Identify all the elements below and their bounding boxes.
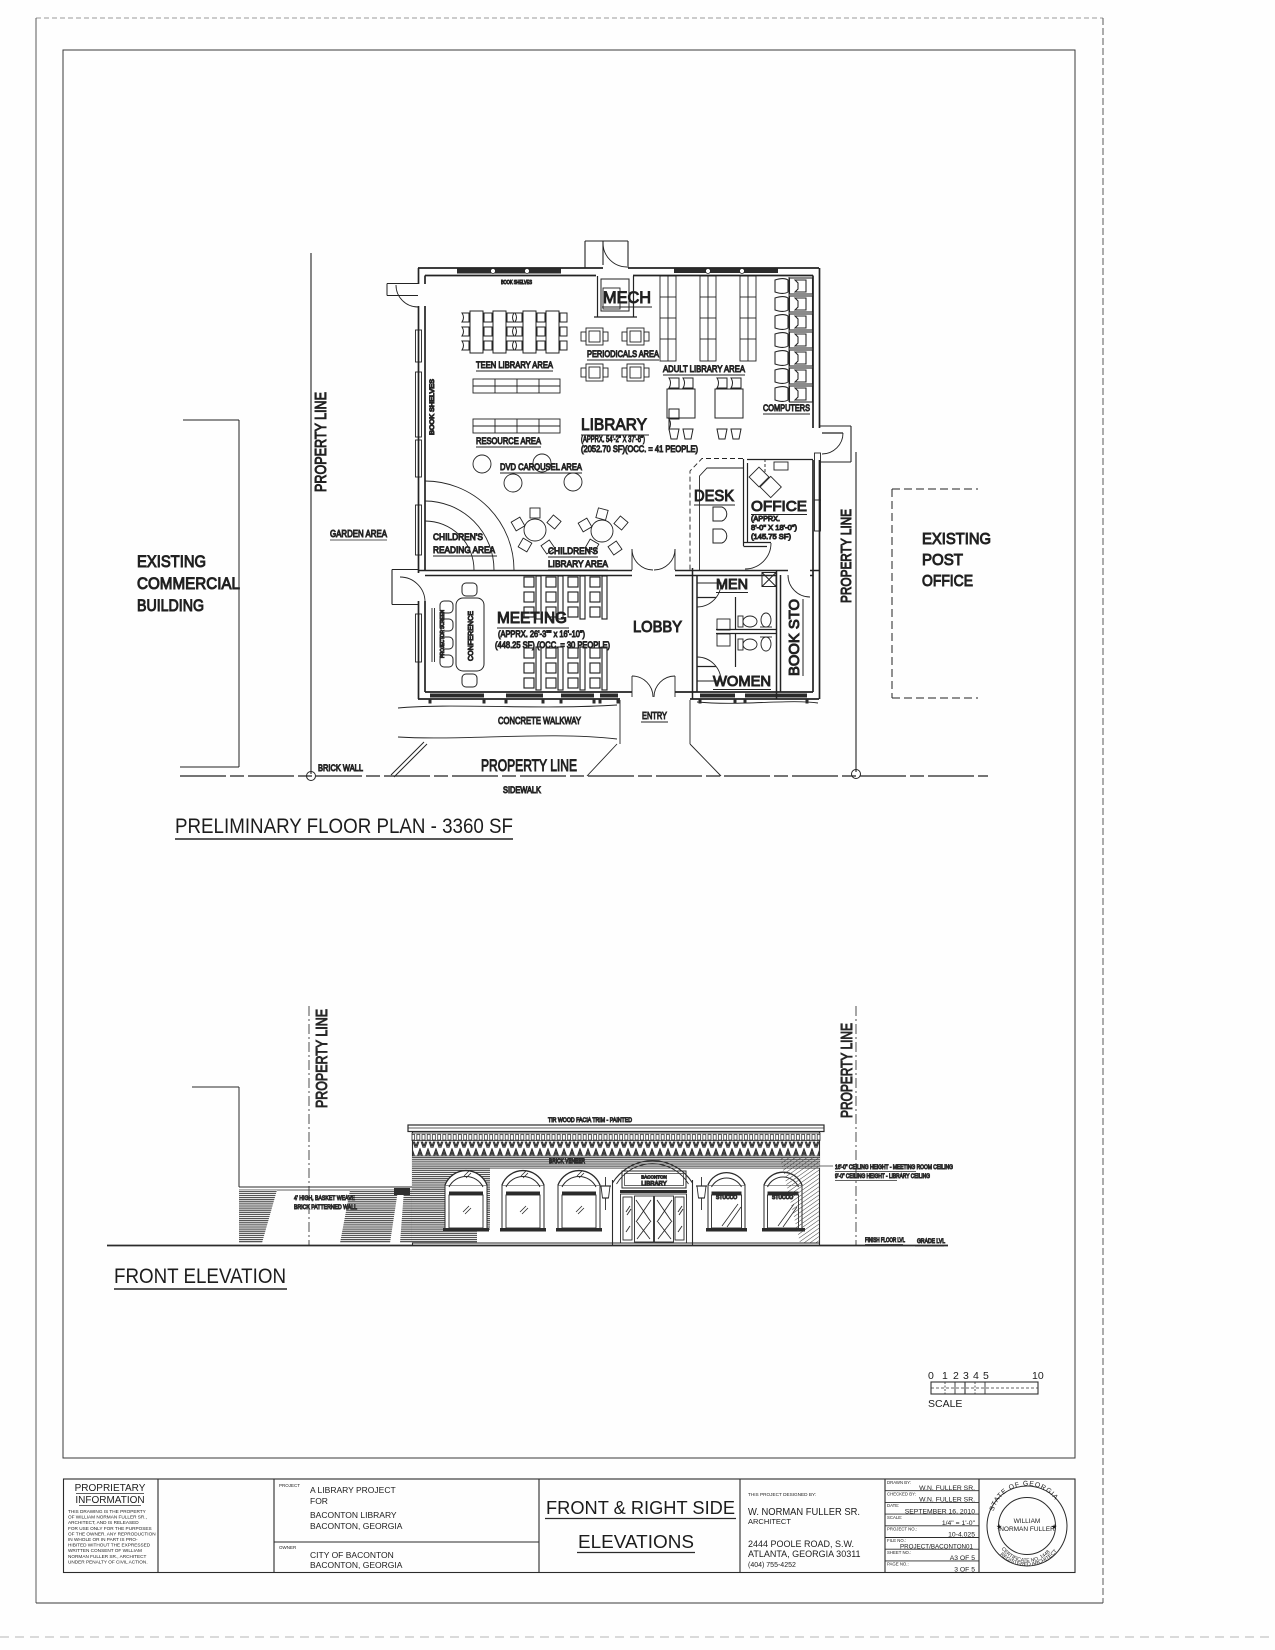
svg-text:PROJECT: PROJECT	[279, 1483, 300, 1488]
svg-text:A3 OF 5: A3 OF 5	[950, 1555, 976, 1562]
svg-text:4: 4	[973, 1370, 979, 1382]
svg-text:1/4" = 1'-0": 1/4" = 1'-0"	[942, 1520, 976, 1527]
svg-text:SCALE: SCALE	[928, 1398, 962, 1410]
svg-text:BRICK PATTERNED WALL: BRICK PATTERNED WALL	[294, 1204, 357, 1211]
svg-text:NORMAN FULLER SR., ARCHITECT: NORMAN FULLER SR., ARCHITECT	[68, 1554, 147, 1559]
svg-text:FINISH FLOOR LVL: FINISH FLOOR LVL	[865, 1238, 905, 1244]
svg-text:CONCRETE WALKWAY: CONCRETE WALKWAY	[498, 715, 581, 727]
svg-text:PROJECTOR SCREEN: PROJECTOR SCREEN	[440, 610, 446, 658]
svg-text:SEPTEMBER 16, 2010: SEPTEMBER 16, 2010	[905, 1509, 975, 1516]
svg-text:4' HIGH, BASKET WEAVE: 4' HIGH, BASKET WEAVE	[294, 1195, 356, 1202]
svg-text:16'-0" CEILING HEIGHT - MEETI: 16'-0" CEILING HEIGHT - MEETING ROOM CEI…	[835, 1165, 953, 1171]
svg-text:THIS DRAWING IS THE PROPERTY: THIS DRAWING IS THE PROPERTY	[68, 1509, 147, 1514]
svg-text:WILLIAM: WILLIAM	[1014, 1518, 1041, 1525]
svg-text:PROJECT NO.:: PROJECT NO.:	[887, 1527, 917, 1532]
svg-text:CONFERENCE: CONFERENCE	[466, 611, 475, 661]
svg-text:W.N. FULLER SR.: W.N. FULLER SR.	[919, 1485, 975, 1492]
svg-text:PROJECT/BACONTON01: PROJECT/BACONTON01	[900, 1543, 973, 1550]
svg-text:ARCHITECT, AND IS RELEASED: ARCHITECT, AND IS RELEASED	[68, 1520, 139, 1525]
svg-text:CHILDREN'S: CHILDREN'S	[433, 532, 483, 543]
svg-text:BACONTON, GEORGIA: BACONTON, GEORGIA	[310, 1521, 403, 1531]
svg-text:LOBBY: LOBBY	[633, 619, 682, 636]
svg-text:DATE:: DATE:	[887, 1503, 899, 1508]
svg-text:PROPERTY LINE: PROPERTY LINE	[314, 1009, 331, 1108]
svg-text:1: 1	[942, 1370, 948, 1382]
svg-text:(2052.70 SF)(OCC. = 41 PEOPLE): (2052.70 SF)(OCC. = 41 PEOPLE)	[581, 444, 698, 454]
svg-text:ENTRY: ENTRY	[642, 710, 667, 722]
svg-text:10-4.025: 10-4.025	[948, 1532, 975, 1539]
svg-text:SHEET NO.:: SHEET NO.:	[887, 1550, 911, 1555]
svg-text:WOMEN: WOMEN	[713, 674, 771, 690]
svg-text:BOOK SHELVES: BOOK SHELVES	[430, 379, 436, 435]
svg-text:BUILDING: BUILDING	[137, 597, 204, 615]
svg-text:HIBITED WITHOUT THE EXPRESSED: HIBITED WITHOUT THE EXPRESSED	[68, 1543, 151, 1548]
svg-text:BOOK SHELVES: BOOK SHELVES	[501, 280, 532, 286]
svg-text:GRADE LVL: GRADE LVL	[917, 1239, 946, 1245]
svg-text:★: ★	[996, 1523, 1002, 1531]
svg-text:W.N. FULLER SR.: W.N. FULLER SR.	[919, 1497, 975, 1504]
svg-text:(APPRX.: (APPRX.	[751, 514, 780, 523]
svg-text:MECH: MECH	[603, 288, 651, 307]
svg-text:UNDER PENALTY OF CIVIL ACTION.: UNDER PENALTY OF CIVIL ACTION.	[68, 1559, 148, 1564]
svg-text:WRITTEN CONSENT OF WILLIAM: WRITTEN CONSENT OF WILLIAM	[68, 1548, 142, 1553]
svg-text:DRAWN BY:: DRAWN BY:	[887, 1480, 911, 1485]
svg-text:3: 3	[963, 1370, 969, 1382]
svg-text:OF THE OWNER. ANY REPRODUCTION: OF THE OWNER. ANY REPRODUCTION	[68, 1531, 156, 1536]
svg-text:★: ★	[1051, 1523, 1057, 1531]
svg-text:MEN: MEN	[716, 577, 748, 593]
svg-text:PROPRIETARY: PROPRIETARY	[75, 1483, 146, 1494]
svg-text:ELEVATIONS: ELEVATIONS	[578, 1532, 694, 1552]
svg-text:A LIBRARY PROJECT: A LIBRARY PROJECT	[310, 1485, 396, 1495]
svg-text:PERIODICALS AREA: PERIODICALS AREA	[587, 349, 660, 360]
svg-text:TEEN LIBRARY AREA: TEEN LIBRARY AREA	[476, 360, 554, 371]
svg-text:READING AREA: READING AREA	[433, 545, 496, 556]
svg-text:CITY OF BACONTON: CITY OF BACONTON	[310, 1550, 394, 1560]
svg-text:EXISTING: EXISTING	[922, 531, 991, 548]
svg-text:2: 2	[953, 1370, 959, 1382]
svg-text:OFFICE: OFFICE	[751, 498, 807, 515]
svg-text:ARCHITECT: ARCHITECT	[748, 1517, 791, 1526]
svg-text:FOR: FOR	[310, 1496, 328, 1506]
svg-text:NORMAN FULLER: NORMAN FULLER	[999, 1526, 1055, 1533]
svg-text:OFFICE: OFFICE	[922, 573, 973, 590]
svg-text:8'-0" X 18'-0"): 8'-0" X 18'-0")	[751, 523, 797, 532]
svg-text:EXISTING: EXISTING	[137, 553, 206, 571]
svg-text:PRELIMINARY FLOOR PLAN - 3360: PRELIMINARY FLOOR PLAN - 3360 SF	[175, 815, 513, 838]
svg-text:THIS PROJECT DESIGNED BY:: THIS PROJECT DESIGNED BY:	[748, 1492, 816, 1497]
svg-text:PROPERTY LINE: PROPERTY LINE	[481, 756, 577, 775]
svg-text:3 OF 5: 3 OF 5	[954, 1567, 975, 1574]
svg-text:(APPRX. 54'-2" X 37'-8"): (APPRX. 54'-2" X 37'-8")	[581, 434, 645, 444]
svg-text:SIDEWALK: SIDEWALK	[503, 785, 541, 795]
svg-text:CHILDREN'S: CHILDREN'S	[548, 546, 598, 557]
svg-text:OF WILLIAM NORMAN FULLER SR.,: OF WILLIAM NORMAN FULLER SR.,	[68, 1515, 147, 1520]
svg-text:(APPRX. 26'-3"" x 16'-10"): (APPRX. 26'-3"" x 16'-10")	[498, 629, 585, 639]
svg-text:FRONT & RIGHT SIDE: FRONT & RIGHT SIDE	[546, 1498, 735, 1518]
svg-text:PROPERTY LINE: PROPERTY LINE	[838, 509, 855, 603]
svg-text:0: 0	[928, 1370, 934, 1382]
svg-text:IN WHOLE OR IN PART IS PRO-: IN WHOLE OR IN PART IS PRO-	[68, 1537, 138, 1542]
svg-text:ADULT LIBRARY AREA: ADULT LIBRARY AREA	[663, 364, 746, 375]
svg-text:CHECKED BY:: CHECKED BY:	[887, 1492, 916, 1497]
svg-text:PROPERTY LINE: PROPERTY LINE	[839, 1023, 856, 1118]
svg-text:GARDEN AREA: GARDEN AREA	[330, 529, 387, 540]
svg-text:10: 10	[1032, 1370, 1044, 1382]
svg-text:OWNER: OWNER	[279, 1545, 297, 1550]
svg-text:PROPERTY LINE: PROPERTY LINE	[313, 392, 330, 492]
svg-text:BRICK VENEER: BRICK VENEER	[549, 1158, 585, 1165]
svg-text:INFORMATION: INFORMATION	[75, 1495, 144, 1506]
svg-text:ATLANTA, GEORGIA 30311: ATLANTA, GEORGIA 30311	[748, 1549, 861, 1559]
svg-text:FILE NO.:: FILE NO.:	[887, 1538, 906, 1543]
svg-text:9'-0" CEILING HEIGHT - LIBRARY: 9'-0" CEILING HEIGHT - LIBRARY CEILING	[835, 1174, 930, 1180]
svg-text:5: 5	[983, 1370, 989, 1382]
svg-text:FRONT ELEVATION: FRONT ELEVATION	[114, 1265, 286, 1288]
svg-text:PAGE NO.:: PAGE NO.:	[887, 1562, 909, 1567]
svg-text:DESK: DESK	[694, 488, 735, 505]
svg-text:BRICK WALL: BRICK WALL	[318, 763, 363, 774]
svg-text:BACONTON: BACONTON	[641, 1175, 666, 1180]
svg-text:2444 POOLE ROAD, S.W.: 2444 POOLE ROAD, S.W.	[748, 1539, 854, 1549]
svg-text:COMMERCIAL: COMMERCIAL	[137, 575, 240, 593]
svg-text:POST: POST	[922, 552, 963, 569]
svg-text:STUCCO: STUCCO	[716, 1195, 737, 1201]
svg-text:BOOK STO: BOOK STO	[787, 599, 803, 676]
svg-text:COMPUTERS: COMPUTERS	[763, 403, 810, 414]
svg-text:TIR WOOD FACIA TRIM - PAINTED: TIR WOOD FACIA TRIM - PAINTED	[548, 1117, 632, 1124]
svg-text:BACONTON, GEORGIA: BACONTON, GEORGIA	[310, 1560, 403, 1570]
svg-text:FOR USE ONLY FOR THE PURPOSES: FOR USE ONLY FOR THE PURPOSES	[68, 1526, 152, 1531]
svg-text:LIBRARY: LIBRARY	[641, 1182, 667, 1188]
svg-text:LIBRARY: LIBRARY	[581, 415, 647, 434]
svg-text:(404) 755-4252: (404) 755-4252	[748, 1562, 796, 1569]
svg-text:(145.75 SF): (145.75 SF)	[751, 532, 792, 541]
svg-text:DVD CAROUSEL AREA: DVD CAROUSEL AREA	[500, 462, 583, 473]
svg-text:LIBRARY AREA: LIBRARY AREA	[548, 559, 609, 570]
svg-text:BACONTON LIBRARY: BACONTON LIBRARY	[310, 1510, 397, 1520]
svg-text:SCALE:: SCALE:	[887, 1515, 902, 1520]
svg-text:RESOURCE AREA: RESOURCE AREA	[476, 436, 542, 447]
